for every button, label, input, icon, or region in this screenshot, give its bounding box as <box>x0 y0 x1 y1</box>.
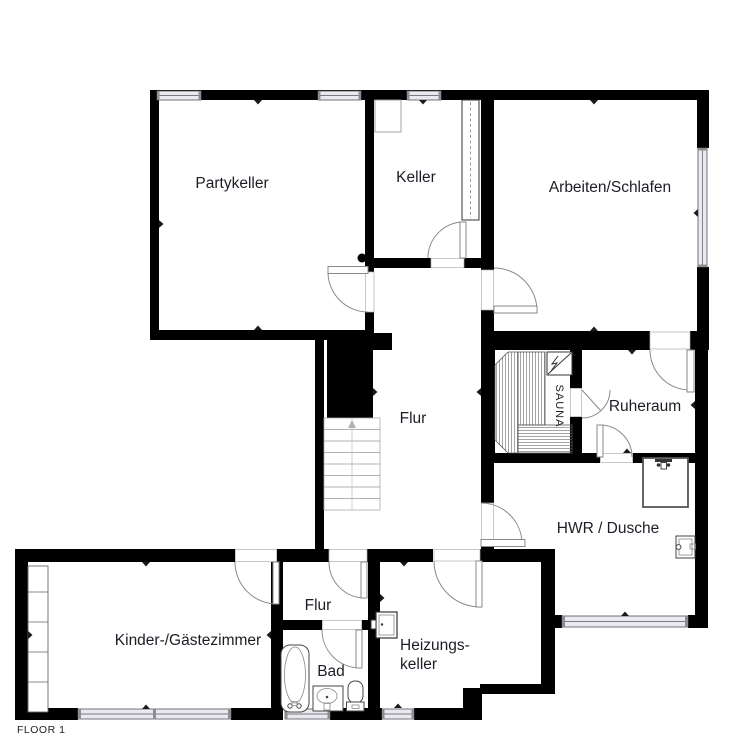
window <box>698 148 707 267</box>
floorplan-canvas: Partykeller Keller Arbeiten/Schlafen Flu… <box>0 0 739 745</box>
window <box>562 616 688 627</box>
door-partykeller <box>328 267 368 313</box>
toilet-icon <box>347 681 365 711</box>
room-label-flur-small: Flur <box>305 597 332 614</box>
floor-label: FLOOR 1 <box>17 724 65 736</box>
room-label-arbeiten-schlafen: Arbeiten/Schlafen <box>549 179 671 196</box>
chimney-block <box>375 100 401 132</box>
door-flur-small <box>329 562 367 598</box>
room-label-heizungskeller-line2: keller <box>400 656 437 673</box>
room-label-heizungskeller-line1: Heizungs- <box>400 637 470 654</box>
window <box>78 709 231 719</box>
door-keller <box>428 222 466 258</box>
room-label-keller: Keller <box>396 169 436 186</box>
door-arbeiten-schlafen <box>494 268 537 313</box>
floorplan-page: Partykeller Keller Arbeiten/Schlafen Flu… <box>0 0 739 745</box>
shower-icon <box>643 458 688 507</box>
room-label-ruheraum: Ruheraum <box>609 398 681 415</box>
duct-shaft <box>462 100 479 220</box>
door-sauna <box>582 390 610 418</box>
sink-icon <box>313 686 343 711</box>
hwr-fixtures <box>643 458 696 558</box>
door-thresholds <box>236 259 691 630</box>
window <box>407 91 441 100</box>
sauna-heater-icon <box>547 352 572 375</box>
room-label-kinder-gaestezimmer: Kinder-/Gästezimmer <box>115 632 261 649</box>
column-dot <box>358 254 367 263</box>
door-heizungskeller <box>434 561 482 607</box>
window <box>318 91 361 100</box>
room-label-flur-main: Flur <box>400 410 427 427</box>
wall-sink-icon <box>676 536 696 558</box>
sauna-bench-icon <box>495 352 518 453</box>
room-label-sauna: SAUNA <box>553 385 565 428</box>
sauna-bench-icon <box>518 425 572 453</box>
wardrobe <box>28 566 48 712</box>
sauna-bench-icon <box>518 352 545 425</box>
stairs <box>324 418 380 510</box>
room-label-partykeller: Partykeller <box>195 175 268 192</box>
door-ruheraum-top <box>650 350 694 392</box>
bathtub-icon <box>281 645 309 712</box>
window <box>157 91 201 100</box>
room-label-hwr-dusche: HWR / Dusche <box>557 520 660 537</box>
room-label-bad: Bad <box>317 663 345 680</box>
window <box>382 709 414 719</box>
